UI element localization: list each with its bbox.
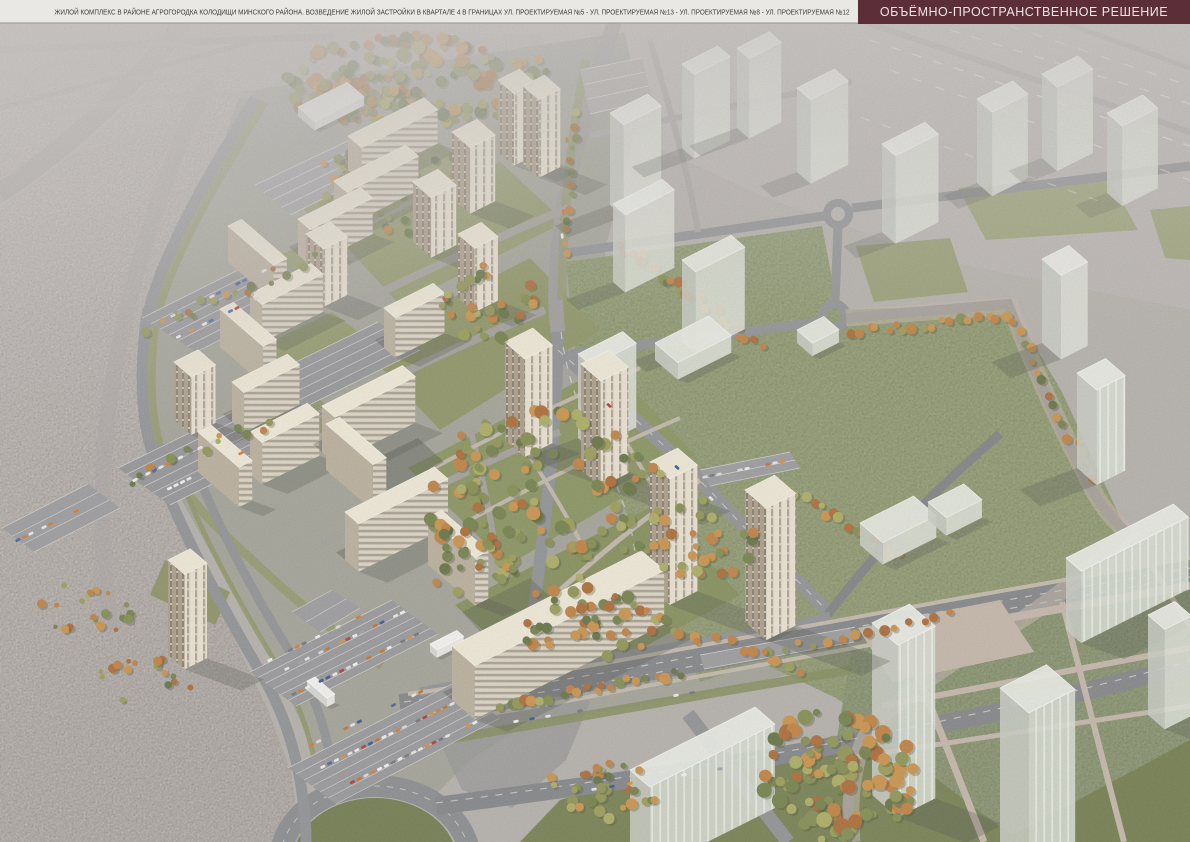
svg-text:ОБЪЁМНО-ПРОСТРАНСТВЕННОЕ РЕШЕН: ОБЪЁМНО-ПРОСТРАНСТВЕННОЕ РЕШЕНИЕ [880,5,1168,19]
svg-text:ЖИЛОЙ КОМПЛЕКС В РАЙОНЕ АГРОГО: ЖИЛОЙ КОМПЛЕКС В РАЙОНЕ АГРОГОРОДКА КОЛО… [55,8,850,17]
